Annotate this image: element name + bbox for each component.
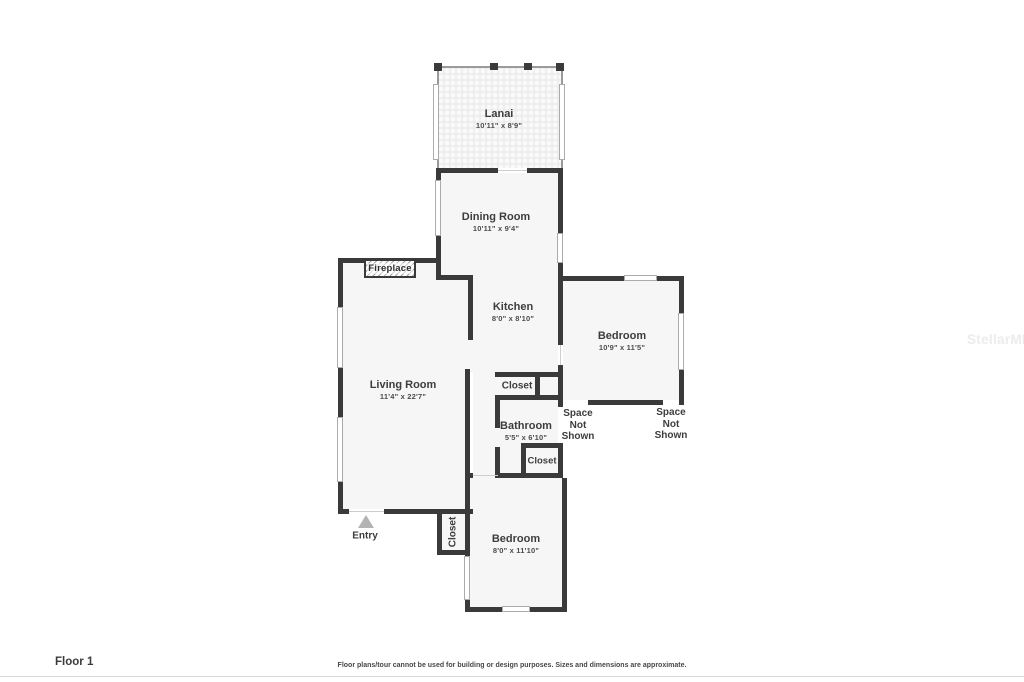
wall	[535, 377, 540, 397]
wall	[338, 368, 343, 417]
wall-post	[434, 63, 442, 71]
wall	[338, 509, 349, 514]
floor-label: Floor 1	[55, 656, 93, 668]
wall	[436, 168, 498, 173]
wall	[437, 66, 563, 68]
wall	[679, 370, 684, 405]
footer-divider	[0, 676, 1024, 677]
window	[559, 84, 565, 160]
room-label-bathroom: Bathroom 5'5" x 6'10"	[500, 420, 552, 442]
window	[435, 180, 441, 236]
door-opening	[560, 345, 561, 365]
window	[557, 233, 563, 263]
wall-post	[490, 63, 498, 70]
wall	[495, 372, 563, 377]
closet-mid-label: Closet	[527, 456, 556, 467]
closet-entry-label: Closet	[448, 517, 459, 548]
wall	[468, 275, 473, 340]
wall	[558, 168, 563, 233]
window	[337, 307, 343, 368]
wall	[495, 395, 563, 400]
stellar-mls-watermark: StellarMLS	[967, 332, 1024, 347]
wall	[384, 509, 473, 514]
room-label-lanai: Lanai 10'11" x 8'9"	[476, 108, 522, 130]
floor-plan-page: Fireplace Lanai 10'11" x 8'9" Dining Roo…	[0, 0, 1024, 682]
wall	[437, 509, 442, 555]
wall	[679, 276, 684, 313]
wall-post	[524, 63, 532, 70]
room-label-dining-room: Dining Room 10'11" x 9'4"	[462, 211, 530, 233]
fireplace: Fireplace	[364, 259, 416, 278]
wall	[562, 478, 567, 612]
room-label-kitchen: Kitchen 8'0" x 8'10"	[492, 301, 534, 323]
wall	[465, 478, 470, 556]
wall	[498, 473, 563, 478]
space-not-shown-left: Space Not Shown	[562, 408, 595, 443]
wall	[526, 443, 558, 448]
room-label-living-room: Living Room 11'4" x 22'7"	[370, 379, 437, 401]
wall	[563, 276, 624, 281]
door-opening	[349, 511, 384, 512]
window	[464, 556, 470, 600]
window	[433, 84, 439, 160]
space-not-shown-right: Space Not Shown	[655, 407, 688, 442]
fireplace-label: Fireplace	[367, 263, 413, 274]
entry-label: Entry	[352, 531, 378, 542]
wall	[588, 400, 663, 405]
window	[502, 606, 530, 612]
entry-arrow-icon	[358, 515, 374, 528]
window	[337, 417, 343, 482]
door-opening	[473, 475, 498, 476]
wall-post	[556, 63, 564, 71]
closet-top-label: Closet	[502, 381, 533, 392]
window	[624, 275, 657, 281]
room-label-bedroom-bottom: Bedroom 8'0" x 11'10"	[492, 533, 540, 555]
room-label-bedroom-right: Bedroom 10'9" x 11'5"	[598, 330, 646, 352]
wall	[338, 258, 343, 307]
wall	[436, 168, 441, 180]
door-opening	[498, 170, 527, 171]
wall	[465, 369, 470, 477]
wall	[465, 607, 502, 612]
disclaimer-text: Floor plans/tour cannot be used for buil…	[338, 662, 687, 669]
window	[678, 313, 684, 370]
